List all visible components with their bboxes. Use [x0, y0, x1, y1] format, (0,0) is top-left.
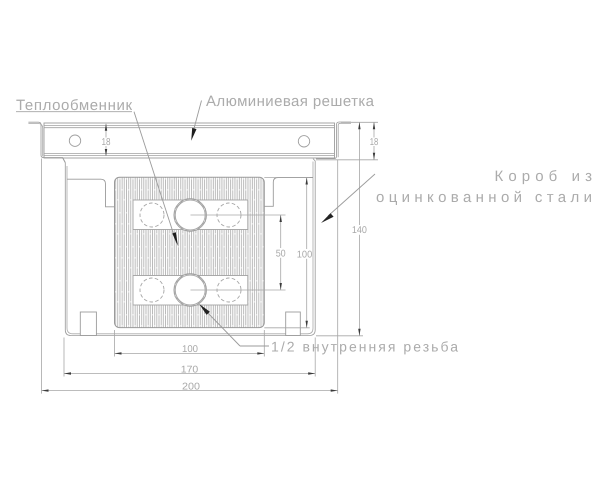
svg-text:Алюминиевая решетка: Алюминиевая решетка: [206, 93, 375, 110]
svg-text:140: 140: [352, 225, 367, 236]
svg-text:100: 100: [297, 249, 313, 260]
svg-text:18: 18: [102, 137, 111, 148]
svg-text:100: 100: [182, 344, 199, 355]
svg-text:170: 170: [181, 364, 199, 375]
svg-text:200: 200: [182, 381, 201, 392]
svg-text:Короб из: Короб из: [495, 168, 593, 185]
svg-text:50: 50: [276, 248, 286, 259]
svg-text:18: 18: [370, 137, 379, 148]
